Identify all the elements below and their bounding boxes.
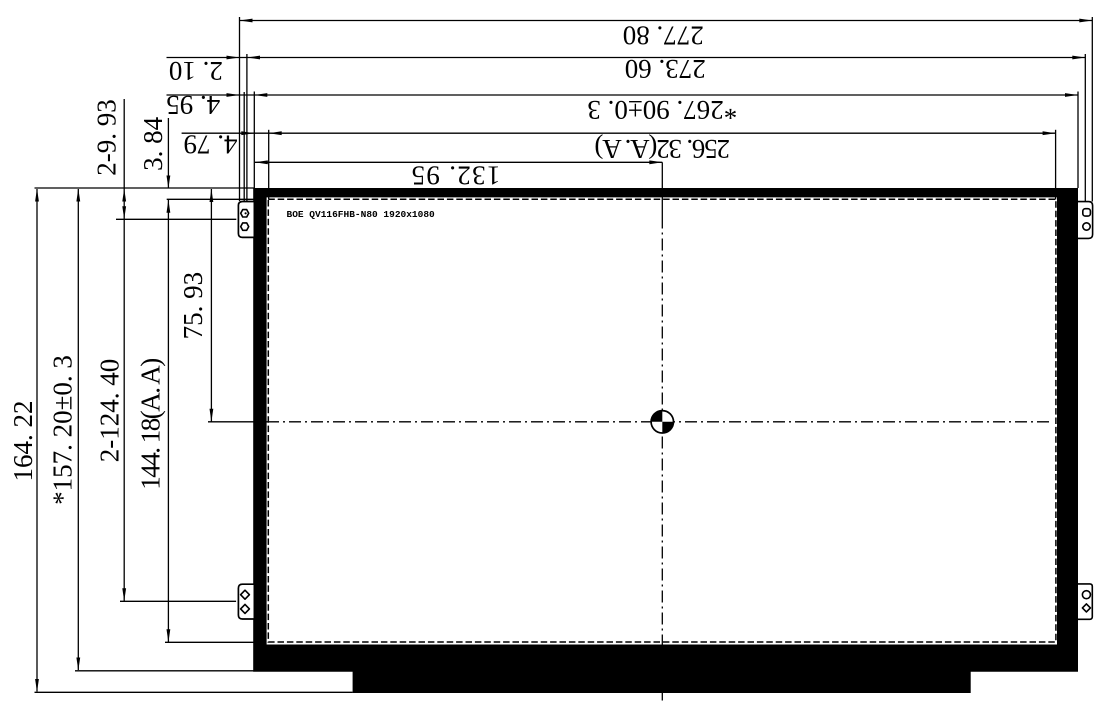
svg-text:4. 79: 4. 79 <box>184 130 238 160</box>
svg-text:2. 10: 2. 10 <box>169 56 223 86</box>
svg-text:273. 60: 273. 60 <box>625 54 706 84</box>
svg-text:256. 32(A. A): 256. 32(A. A) <box>595 134 730 164</box>
svg-text:277. 80: 277. 80 <box>623 20 704 50</box>
svg-text:75. 93: 75. 93 <box>178 272 208 340</box>
svg-text:BOE QV116FHB-N80 1920x1080: BOE QV116FHB-N80 1920x1080 <box>287 209 436 220</box>
svg-text:2-124. 40: 2-124. 40 <box>94 359 124 463</box>
svg-text:*267. 90±0. 3: *267. 90±0. 3 <box>587 95 737 125</box>
svg-text:144. 18(A. A): 144. 18(A. A) <box>135 359 165 490</box>
svg-text:3. 84: 3. 84 <box>138 116 168 171</box>
svg-text:*157. 20±0. 3: *157. 20±0. 3 <box>48 355 78 505</box>
svg-text:2-9. 93: 2-9. 93 <box>92 99 122 176</box>
svg-text:132. 95: 132. 95 <box>410 161 500 191</box>
svg-text:4. 95: 4. 95 <box>166 90 220 120</box>
svg-text:164. 22: 164. 22 <box>8 401 38 482</box>
